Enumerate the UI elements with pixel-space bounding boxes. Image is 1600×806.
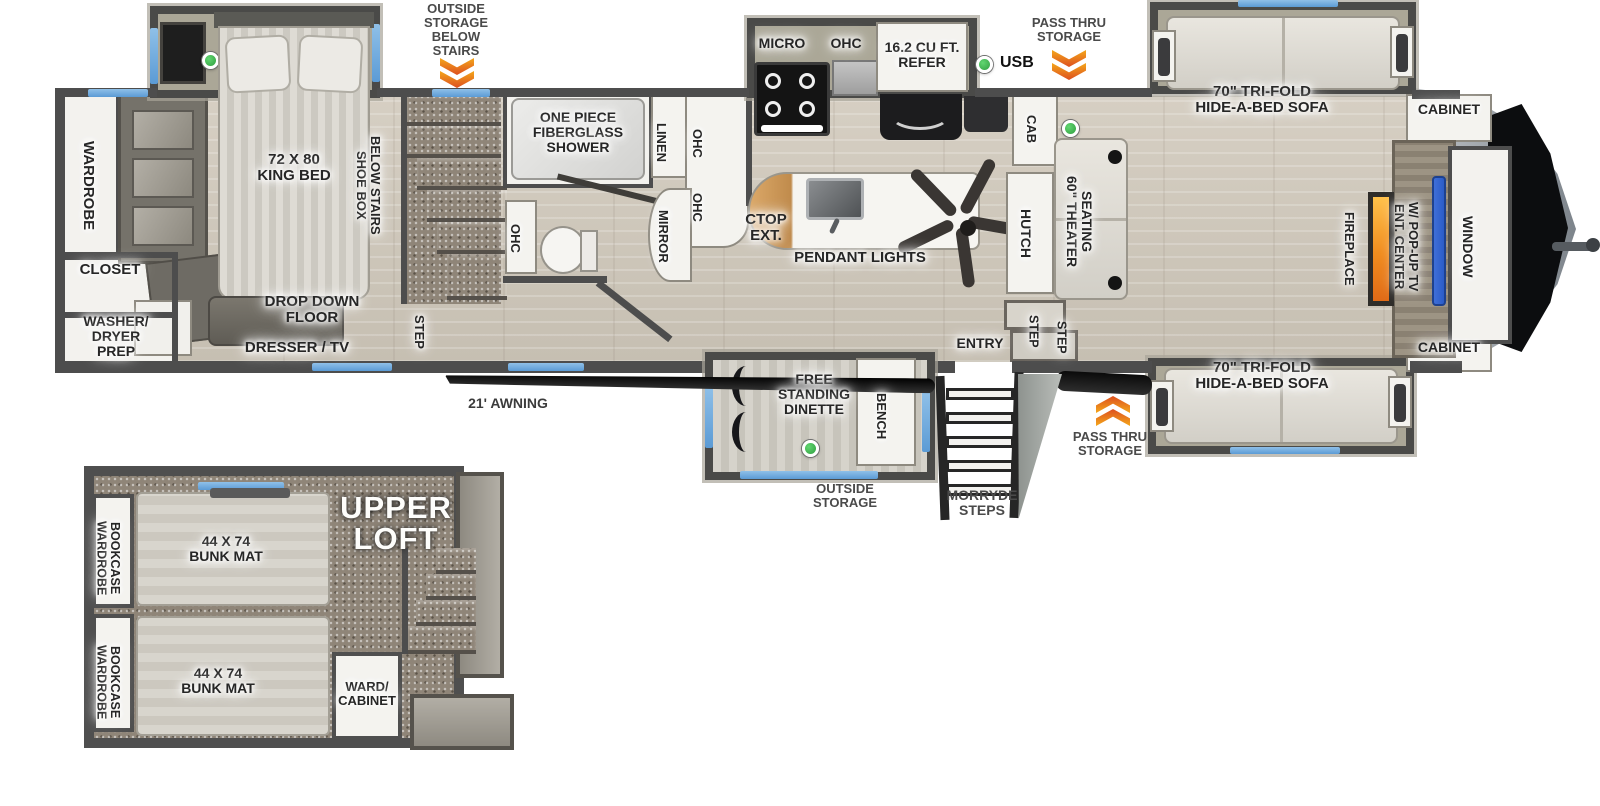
living-step-2-label: STEP (1054, 312, 1068, 362)
front-window-room (1448, 146, 1512, 344)
closet-label: CLOSET (64, 262, 156, 278)
loft-3d-shelf-bottom (410, 694, 514, 750)
dinette-window-left (705, 386, 713, 448)
hutch-label: HUTCH (1018, 198, 1033, 268)
closet-divider-wall (58, 252, 178, 258)
loft-bunk-2-label: 44 X 74 BUNK MAT (168, 666, 268, 696)
dinette-window-bottom (740, 471, 878, 479)
tri-fold-sofa-top (1166, 16, 1400, 90)
sofa-top-window-right (1390, 26, 1414, 78)
king-bed-pillow (297, 34, 364, 93)
ohc-toilet-label: OHC (508, 212, 522, 264)
pass-thru-bottom-arrows-icon (1096, 396, 1130, 428)
washer-dryer-label: WASHER/ DRYER PREP (60, 314, 172, 359)
cabinet-top-label: CABINET (1408, 102, 1490, 117)
refer-label: 16.2 CU FT. REFER (878, 40, 966, 70)
pass-thru-top-arrows-icon (1052, 50, 1086, 82)
dresser-drawer (132, 110, 194, 150)
loft-stairs-wall (402, 548, 408, 654)
upper-loft-title: UPPER LOFT (326, 492, 466, 554)
window-bottom-2 (508, 363, 584, 371)
entry-label: ENTRY (950, 336, 1010, 351)
bedroom-slide-window-right (372, 24, 380, 82)
shoe-box-label: SHOE BOX BELOW STAIRS (354, 122, 382, 248)
outside-storage-arrows-icon (440, 58, 474, 90)
rv-floorplan-canvas: OUTSIDE STORAGE BELOW STAIRS PASS THRU S… (0, 0, 1600, 806)
dinette-window-right (922, 392, 930, 452)
king-bed-label: 72 X 80 KING BED (246, 152, 342, 184)
toilet-tank (580, 230, 598, 272)
entry-awning-bar (1056, 371, 1153, 396)
ceiling-fan (960, 220, 976, 236)
ohc-lower-label: OHC (690, 184, 704, 230)
fireplace-flame (1373, 197, 1389, 301)
usb-led (976, 56, 993, 73)
wardrobe-label: WARDROBE (80, 116, 96, 256)
bathroom-wall-bottom (503, 276, 607, 283)
sofa-top-window-left (1152, 30, 1176, 82)
pop-up-tv (1432, 176, 1446, 306)
living-usb-led (1062, 120, 1079, 137)
bottom-wall-d (1410, 361, 1462, 373)
dinette-usb-led (802, 440, 819, 457)
front-window-label: WINDOW (1460, 202, 1475, 292)
dinette-chair (732, 412, 760, 452)
morryde-steps-label: MORRYDE STEPS (928, 488, 1036, 518)
sofa-bottom-label: 70" TRI-FOLD HIDE-A-BED SOFA (1172, 360, 1352, 392)
living-step-1-label: STEP (1026, 306, 1040, 356)
dresser-drawer (132, 206, 194, 246)
island-sink (806, 178, 864, 220)
loft-bunk-1-label: 44 X 74 BUNK MAT (176, 534, 276, 564)
loft-bookcase-1-label: WARDROBE BOOKCASE (94, 512, 121, 604)
drop-down-floor-label: DROP DOWN FLOOR (238, 294, 386, 326)
ent-center-label: ENT. CENTER W/ POP-UP TV (1392, 184, 1420, 310)
bedroom-usb-led (202, 52, 219, 69)
fireplace-label: FIREPLACE (1342, 198, 1356, 300)
micro-label: MICRO (750, 36, 814, 51)
bedroom-stairs (401, 94, 501, 304)
pass-thru-storage-bottom-label: PASS THRU STORAGE (1058, 430, 1162, 458)
sofa-top-roof-window (1238, 0, 1338, 7)
cab-label: CAB (1024, 106, 1038, 152)
loft-stairs (408, 548, 476, 654)
dresser-tv-label: DRESSER / TV (240, 340, 354, 356)
king-bed-pillow (225, 34, 292, 93)
top-wall-c (975, 88, 1152, 97)
bedroom-step-label: STEP (412, 306, 426, 358)
counter-right (964, 96, 1008, 132)
linen-label: LINEN (654, 112, 668, 172)
cabinet-bottom-label: CABINET (1408, 340, 1490, 355)
outside-storage-dinette-label: OUTSIDE STORAGE (802, 482, 888, 510)
shower-label: ONE PIECE FIBERGLASS SHOWER (526, 110, 630, 155)
bedroom-slide-window-left (150, 28, 158, 84)
outside-storage-below-stairs-label: OUTSIDE STORAGE BELOW STAIRS (404, 2, 508, 58)
refrigerator (880, 94, 962, 140)
range-stove (754, 62, 830, 136)
ctop-ext-label: CTOP EXT. (736, 212, 796, 244)
pass-thru-storage-top-label: PASS THRU STORAGE (1022, 16, 1116, 44)
sofa-top-label: 70" TRI-FOLD HIDE-A-BED SOFA (1170, 84, 1354, 116)
loft-bookcase-2-label: WARDROBE BOOKCASE (94, 636, 121, 728)
sofa-bottom-window-right (1388, 376, 1412, 428)
sofa-bottom-window-left (1150, 380, 1174, 432)
kitchen-ohc-label: OHC (818, 36, 874, 51)
free-standing-dinette-label: FREE STANDING DINETTE (760, 372, 868, 417)
kitchen-counter (832, 60, 878, 96)
awning-label: 21' AWNING (458, 396, 558, 411)
mirror-label: MIRROR (656, 196, 670, 276)
ohc-upper-label: OHC (690, 118, 704, 168)
top-wall-d (1412, 90, 1460, 99)
bench-label: BENCH (874, 386, 888, 446)
bedroom-tv (160, 22, 206, 84)
loft-ward-cabinet-label: WARD/ CABINET (330, 680, 404, 708)
window-stairs-top (432, 89, 490, 97)
pendant-lights-label: PENDANT LIGHTS (790, 250, 930, 266)
sofa-bottom-roof-window (1230, 447, 1340, 454)
usb-label: USB (1000, 54, 1046, 71)
bathroom-wall-right (746, 96, 752, 206)
loft-bunk-vent (210, 488, 290, 498)
window-top-left (88, 89, 148, 97)
window-bottom-1 (312, 363, 392, 371)
theater-seating-label: 60" THEATER SEATING (1064, 156, 1094, 288)
dresser-drawer (132, 158, 194, 198)
hitch-knob (1586, 238, 1600, 252)
